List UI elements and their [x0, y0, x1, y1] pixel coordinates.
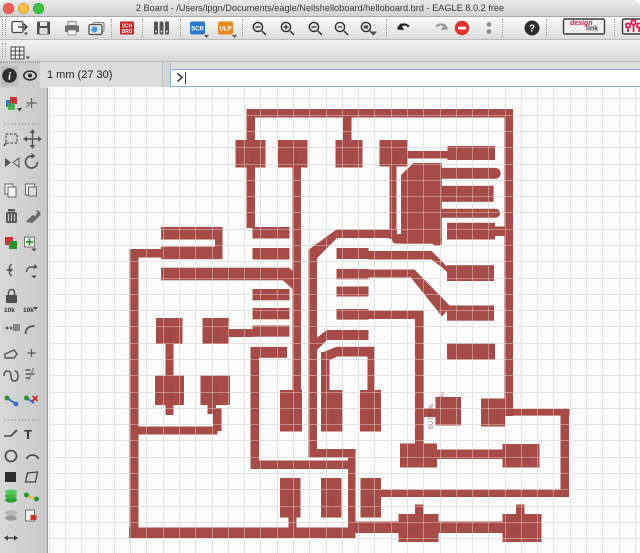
svg-text:GND: GND — [513, 528, 527, 534]
svg-text:SCK: SCK — [331, 412, 337, 424]
svg-text:VCC: VCC — [349, 153, 355, 166]
svg-text:MOSI: MOSI — [168, 328, 174, 344]
svg-text:VCC: VCC — [496, 408, 502, 421]
svg-text:DGND: DGND — [214, 385, 220, 403]
svg-text:VCC: VCC — [251, 153, 257, 166]
svg-text:LED: LED — [215, 332, 221, 344]
svg-text:GND: GND — [409, 528, 423, 534]
svg-text:BUTTON: BUTTON — [506, 456, 531, 462]
svg-text:GND: GND — [289, 494, 295, 508]
svg-text:GND: GND — [394, 152, 400, 166]
svg-text:KEY: KEY — [370, 412, 376, 424]
svg-text:PGM: PGM — [169, 389, 175, 403]
